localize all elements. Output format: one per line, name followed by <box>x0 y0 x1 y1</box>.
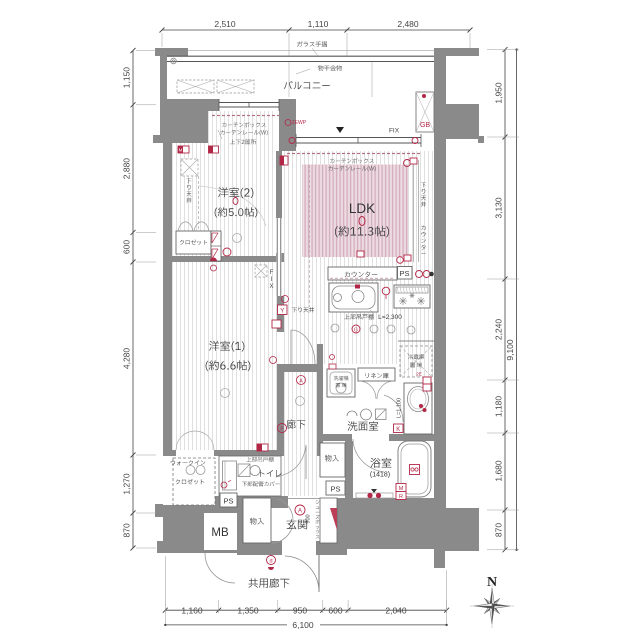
svg-text:1,110: 1,110 <box>308 19 329 29</box>
svg-text:2,880: 2,880 <box>122 158 132 180</box>
svg-text:870: 870 <box>494 523 504 537</box>
svg-text:900: 900 <box>306 514 312 523</box>
svg-text:2,480: 2,480 <box>397 19 419 29</box>
svg-text:M: M <box>179 147 183 152</box>
svg-text:2,240: 2,240 <box>494 319 504 341</box>
svg-text:K: K <box>396 427 400 433</box>
svg-text:3,130: 3,130 <box>494 197 504 219</box>
svg-text:L=2,300: L=2,300 <box>378 314 402 321</box>
svg-text:1,680: 1,680 <box>494 460 504 482</box>
svg-text:4,280: 4,280 <box>122 348 132 370</box>
svg-text:2,040: 2,040 <box>385 606 407 616</box>
svg-text:9,100: 9,100 <box>505 339 515 361</box>
svg-text:L=1,100: L=1,100 <box>397 398 403 418</box>
svg-text:1,160: 1,160 <box>181 606 203 616</box>
svg-text:GB: GB <box>420 122 430 129</box>
svg-text:2,510: 2,510 <box>214 19 236 29</box>
svg-text:d: d <box>269 559 272 565</box>
svg-text:F: F <box>270 270 274 276</box>
svg-text:N: N <box>487 575 497 590</box>
svg-text:PS: PS <box>223 497 233 506</box>
svg-text:600: 600 <box>122 240 132 254</box>
svg-text:G: G <box>354 328 358 334</box>
svg-text:MB: MB <box>211 527 229 539</box>
svg-text:X: X <box>269 284 273 290</box>
svg-text:PS: PS <box>399 269 409 278</box>
svg-text:1,150: 1,150 <box>122 67 132 89</box>
svg-text:Y: Y <box>280 309 284 315</box>
svg-text:1,950: 1,950 <box>494 82 504 104</box>
svg-text:2E: 2E <box>416 372 422 377</box>
svg-text:1,350: 1,350 <box>237 606 259 616</box>
svg-text:950: 950 <box>293 606 307 616</box>
svg-text:A: A <box>298 509 302 515</box>
svg-text:FIX: FIX <box>389 128 400 135</box>
svg-text:1,180: 1,180 <box>494 396 504 418</box>
svg-text:600: 600 <box>328 606 342 616</box>
svg-text:1,270: 1,270 <box>122 473 132 495</box>
svg-text:PS: PS <box>330 485 340 494</box>
svg-text:870: 870 <box>122 523 132 537</box>
svg-text:6,100: 6,100 <box>292 620 314 630</box>
svg-text:R: R <box>399 494 403 500</box>
svg-text:2EWP: 2EWP <box>292 120 307 126</box>
svg-text:LDK: LDK <box>349 201 375 216</box>
svg-text:(1418): (1418) <box>370 472 390 479</box>
